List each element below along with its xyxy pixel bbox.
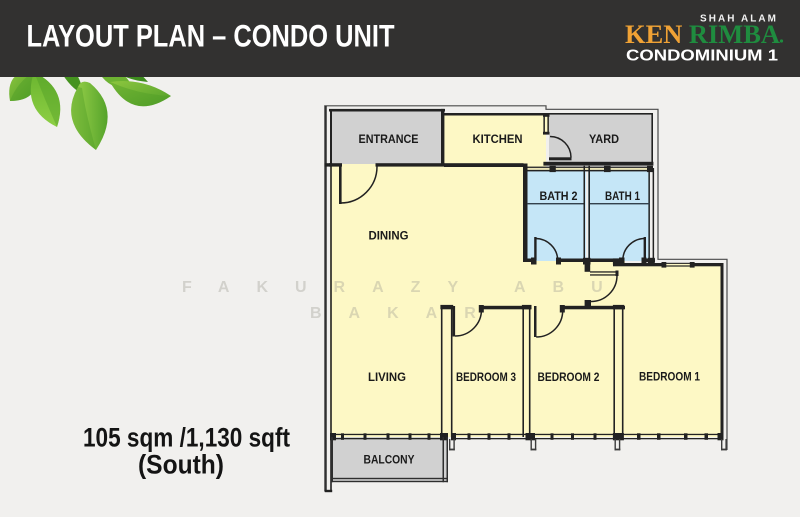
svg-text:LIVING: LIVING bbox=[368, 370, 406, 384]
svg-text:BEDROOM 1: BEDROOM 1 bbox=[639, 372, 701, 384]
svg-text:BATH 1: BATH 1 bbox=[605, 191, 641, 203]
svg-text:BEDROOM 3: BEDROOM 3 bbox=[456, 372, 516, 384]
svg-text:BATH 2: BATH 2 bbox=[540, 191, 578, 203]
svg-text:YARD: YARD bbox=[589, 132, 619, 146]
svg-text:CONDOMINIUM 1: CONDOMINIUM 1 bbox=[626, 48, 778, 65]
svg-text:ABU: ABU bbox=[514, 279, 630, 296]
svg-text:105 sqm /1,130 sqft: 105 sqm /1,130 sqft bbox=[83, 423, 290, 453]
svg-text:BEDROOM 2: BEDROOM 2 bbox=[538, 372, 600, 384]
svg-text:DINING: DINING bbox=[369, 229, 409, 243]
svg-text:ENTRANCE: ENTRANCE bbox=[359, 132, 419, 146]
svg-text:BAKAR: BAKAR bbox=[310, 305, 503, 322]
svg-text:KITCHEN: KITCHEN bbox=[473, 132, 523, 146]
svg-text:FAKURAZY: FAKURAZY bbox=[182, 279, 485, 296]
svg-text:(South): (South) bbox=[138, 450, 224, 480]
svg-text:KEN RIMBA: KEN RIMBA bbox=[625, 20, 780, 49]
svg-text:LAYOUT PLAN – CONDO UNIT: LAYOUT PLAN – CONDO UNIT bbox=[27, 18, 395, 54]
svg-text:BALCONY: BALCONY bbox=[364, 455, 415, 467]
